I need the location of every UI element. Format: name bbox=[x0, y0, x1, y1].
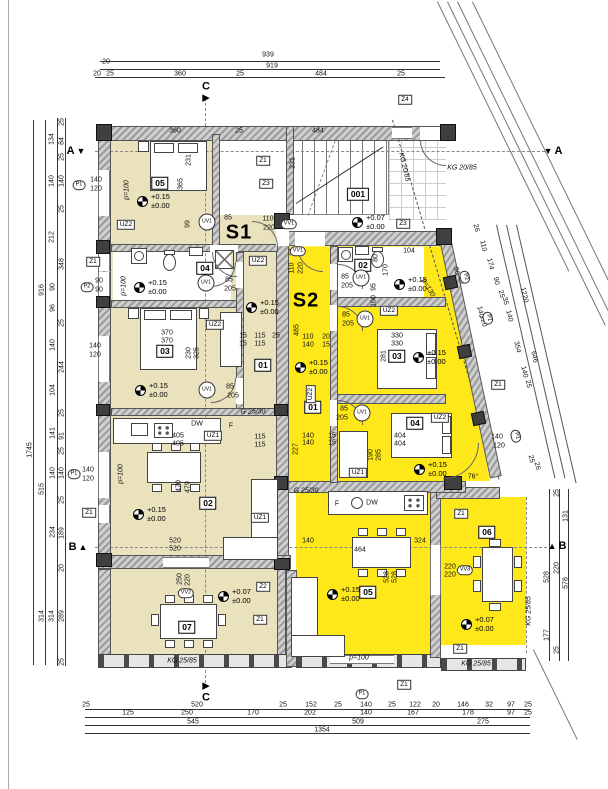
dim-label: 1354 bbox=[314, 727, 330, 734]
dim-label: p=100 bbox=[349, 655, 369, 662]
elevation-value: +0.07 bbox=[366, 213, 385, 222]
elevation-value: +0.15 bbox=[408, 275, 427, 284]
dim-label: 484 bbox=[312, 128, 324, 135]
dim-label: 15 bbox=[239, 333, 247, 340]
door-gap-s2-04 bbox=[330, 400, 337, 426]
dim-label: 528 bbox=[392, 571, 399, 583]
door-gap-s2-02 bbox=[330, 264, 337, 290]
dim-label: 178 bbox=[462, 710, 474, 717]
chair bbox=[203, 640, 213, 648]
opening-tag: Z3 bbox=[396, 219, 410, 229]
door-gap-s1-03 bbox=[236, 378, 243, 404]
dim-line-right bbox=[559, 489, 560, 661]
level-symbol-icon bbox=[413, 352, 424, 363]
pillow bbox=[144, 310, 166, 320]
nightstand bbox=[128, 308, 139, 319]
dim-label: 140 bbox=[50, 467, 57, 479]
dim-label: 110 bbox=[302, 334, 313, 341]
dim-label: 26 bbox=[472, 223, 481, 232]
window-z4 bbox=[392, 127, 412, 139]
dim-label: 25 bbox=[554, 489, 561, 497]
dim-label: 84 bbox=[59, 137, 66, 145]
dining-table bbox=[482, 547, 513, 602]
chair bbox=[152, 484, 162, 492]
dim-label: 25 bbox=[279, 702, 287, 709]
dim-label: 189 bbox=[59, 527, 66, 539]
dim-label: 115 bbox=[254, 341, 265, 348]
dim-label: 120 bbox=[82, 476, 94, 483]
elevation-marker: +0.15±0.00 bbox=[246, 298, 279, 316]
section-arrow-icon: ▶ bbox=[203, 681, 210, 692]
stove bbox=[154, 423, 173, 438]
elevation-value: +0.15 bbox=[309, 358, 328, 367]
chair bbox=[473, 580, 481, 592]
staircase bbox=[289, 128, 389, 215]
dim-label: 140 bbox=[302, 538, 314, 545]
section-marker-a: A▼ bbox=[67, 145, 86, 157]
section-letter: C bbox=[202, 81, 210, 93]
elevation-marker: +0.15±0.00 bbox=[394, 275, 427, 293]
elevation-marker: +0.15±0.00 bbox=[133, 505, 166, 523]
opening-tag: Z1 bbox=[397, 680, 411, 690]
dim-label: 177 bbox=[544, 629, 551, 641]
dim-label: 141 bbox=[50, 427, 57, 439]
opening-vv3 bbox=[430, 545, 441, 595]
dim-label: 96 bbox=[50, 304, 57, 312]
dim-label: 528 bbox=[384, 571, 391, 583]
dim-label: 370 bbox=[161, 330, 173, 337]
level-symbol-icon bbox=[295, 362, 306, 373]
dim-label: 220 bbox=[444, 564, 456, 571]
door-gap-s2-entry bbox=[295, 232, 325, 246]
door-tag: UV1 bbox=[199, 382, 216, 399]
dim-label: 25 bbox=[272, 333, 280, 340]
dim-label: 1220 bbox=[519, 287, 529, 304]
elevation-marker: +0.07±0.00 bbox=[352, 213, 385, 231]
chair bbox=[190, 484, 200, 492]
level-symbol-icon bbox=[414, 464, 425, 475]
room-number-box: 001 bbox=[347, 188, 369, 201]
room-number-box: 01 bbox=[254, 359, 271, 372]
dim-label: 115 bbox=[254, 333, 265, 340]
dim-label: 281 bbox=[381, 350, 388, 362]
dim-line-left bbox=[57, 118, 58, 666]
elevation-value: +0.15 bbox=[147, 505, 166, 514]
ramp-line bbox=[437, 2, 569, 272]
dim-label: 85 bbox=[341, 274, 349, 281]
level-symbol-icon bbox=[327, 589, 338, 600]
elevation-marker: +0.15±0.00 bbox=[135, 381, 168, 399]
elevation-value: ±0.00 bbox=[232, 596, 251, 605]
floor-plan: 9399192020253602548425360254841745916515… bbox=[0, 0, 608, 789]
dim-label: 20 bbox=[322, 334, 330, 341]
window-tag: VV1 bbox=[290, 246, 306, 256]
dim-label: 205 bbox=[341, 283, 353, 290]
section-marker-c: ▶C bbox=[202, 681, 210, 704]
sofa bbox=[291, 635, 345, 657]
dim-label: 205 bbox=[336, 415, 348, 422]
dim-label: 91 bbox=[59, 432, 66, 440]
builtin-tag: UZ1 bbox=[349, 468, 367, 478]
unit-label: S1 bbox=[226, 222, 252, 245]
room-number-box: 06 bbox=[478, 526, 495, 539]
dim-label: 25 bbox=[554, 646, 561, 654]
opening-tag: Z3 bbox=[259, 179, 273, 189]
dim-label: 25 bbox=[106, 71, 114, 78]
dim-label: 470 bbox=[176, 480, 183, 492]
opening-tag: Z1 bbox=[491, 380, 505, 390]
elevation-marker: +0.15±0.00 bbox=[413, 348, 446, 366]
section-letter: B bbox=[69, 541, 77, 553]
column bbox=[96, 240, 110, 254]
elevation-value: +0.07 bbox=[475, 615, 494, 624]
elevation-value: +0.07 bbox=[232, 587, 251, 596]
chair bbox=[514, 580, 522, 592]
dim-label: F bbox=[229, 423, 233, 430]
dim-label: 85 bbox=[226, 384, 234, 391]
chair bbox=[165, 640, 175, 648]
window-left-z1 bbox=[98, 253, 110, 271]
chair bbox=[396, 528, 406, 536]
dim-label: 110 bbox=[289, 262, 296, 273]
dim-label: 140 bbox=[90, 177, 102, 184]
dim-label: 95 bbox=[371, 283, 378, 291]
chair bbox=[489, 539, 501, 547]
dim-label: 646 bbox=[529, 351, 538, 364]
section-letter: C bbox=[202, 692, 210, 704]
elevation-value: +0.15 bbox=[427, 348, 446, 357]
pillow bbox=[170, 310, 192, 320]
builtin-tag: UZ2 bbox=[431, 413, 449, 423]
dim-label: 120 bbox=[89, 352, 101, 359]
door-tag: UV1 bbox=[199, 214, 216, 231]
dim-label: 90 bbox=[50, 283, 57, 291]
dim-label: 25 bbox=[82, 702, 90, 709]
section-arrow-icon: ▶ bbox=[203, 93, 210, 104]
dim-label: 120 bbox=[493, 443, 505, 450]
chair bbox=[358, 569, 368, 577]
dim-label: 140 bbox=[49, 175, 56, 187]
column bbox=[274, 404, 288, 416]
level-symbol-icon bbox=[246, 302, 257, 313]
room-number-box: 07 bbox=[178, 621, 195, 634]
builtin-tag: UZ2 bbox=[380, 306, 398, 316]
dim-label: KG 25/85 bbox=[167, 658, 197, 665]
section-marker-c: C▶ bbox=[202, 81, 210, 104]
dim-label: 140 bbox=[491, 434, 503, 441]
washing-machine-drum bbox=[341, 250, 351, 260]
dim-label: 250 bbox=[177, 573, 184, 585]
dim-label: 314 bbox=[39, 610, 46, 622]
room-number-box: 02 bbox=[199, 497, 216, 510]
elevation-marker: +0.15±0.00 bbox=[327, 585, 360, 603]
pillow bbox=[154, 143, 174, 153]
dim-label: 464 bbox=[354, 547, 366, 554]
elevation-value: ±0.00 bbox=[428, 469, 447, 478]
dim-label: 220 bbox=[298, 262, 305, 274]
elevation-marker: +0.07±0.00 bbox=[218, 587, 251, 605]
dim-label: 231 bbox=[290, 157, 297, 169]
room-number-box: 03 bbox=[388, 350, 405, 363]
opening-tag: Z2 bbox=[256, 582, 270, 592]
dim-label: 99 bbox=[185, 220, 192, 228]
dim-label: 220 bbox=[444, 572, 456, 579]
chair bbox=[377, 528, 387, 536]
dim-label: 314 bbox=[49, 610, 56, 622]
elevation-value: +0.15 bbox=[148, 278, 167, 287]
dim-label: 545 bbox=[187, 719, 199, 726]
window-tag: P1 bbox=[73, 180, 86, 190]
dim-label: 140 bbox=[50, 339, 57, 351]
dim-label: 170 bbox=[383, 264, 390, 276]
dim-label: 360 bbox=[174, 71, 186, 78]
dim-label: 146 bbox=[457, 702, 469, 709]
dim-label: 330 bbox=[391, 341, 403, 348]
elevation-marker: +0.15±0.00 bbox=[137, 192, 170, 210]
level-symbol-icon bbox=[137, 196, 148, 207]
dim-label: 25 bbox=[59, 409, 66, 417]
chair bbox=[184, 640, 194, 648]
dim-label: 250 bbox=[181, 710, 193, 717]
dim-label: F bbox=[335, 501, 339, 508]
elevation-value: ±0.00 bbox=[151, 201, 170, 210]
chair bbox=[489, 603, 501, 611]
dim-label: 85 bbox=[225, 277, 233, 284]
dim-label: 275 bbox=[477, 719, 489, 726]
kitchen-sink bbox=[351, 497, 363, 509]
stove bbox=[404, 495, 424, 511]
dim-label: G 25/30 bbox=[294, 488, 319, 495]
level-symbol-icon bbox=[133, 509, 144, 520]
section-marker-a: ▼A bbox=[544, 145, 563, 157]
opening-tag: Z1 bbox=[453, 644, 467, 654]
dim-label: 348 bbox=[59, 258, 66, 270]
dim-label: 85 bbox=[340, 406, 348, 413]
window-tag: P1 bbox=[482, 311, 494, 326]
opening-tag: Z1 bbox=[256, 156, 270, 166]
dim-label: 404 bbox=[394, 433, 406, 440]
dim-label: 234 bbox=[50, 526, 57, 538]
chair bbox=[514, 556, 522, 568]
section-arrow-icon: ▲ bbox=[548, 541, 557, 551]
dim-label: 15 bbox=[239, 341, 247, 348]
dim-label: 190 bbox=[368, 449, 375, 461]
dim-label: 220 bbox=[185, 574, 192, 586]
chair bbox=[473, 556, 481, 568]
dim-label: 35 bbox=[501, 296, 510, 305]
dim-label: 140 bbox=[302, 433, 314, 440]
dim-label: 140 bbox=[59, 467, 66, 479]
room-number-box: 04 bbox=[406, 417, 423, 430]
dim-line-bottom bbox=[85, 725, 530, 726]
chair bbox=[151, 614, 159, 626]
dim-label: 120 bbox=[90, 186, 102, 193]
chair bbox=[190, 443, 200, 451]
elevation-value: +0.15 bbox=[260, 298, 279, 307]
dim-label: 404 bbox=[394, 441, 406, 448]
dim-label: 520 bbox=[169, 538, 181, 545]
dim-label: 25 bbox=[235, 128, 243, 135]
builtin-tag: UZ2 bbox=[306, 385, 316, 403]
door-tag: UV1 bbox=[198, 275, 215, 292]
elevation-value: +0.15 bbox=[151, 192, 170, 201]
dim-label: 174 bbox=[485, 258, 494, 271]
dim-label: 285 bbox=[376, 449, 383, 461]
dim-label: 25 bbox=[524, 379, 533, 388]
dim-label: 140 bbox=[82, 467, 94, 474]
dim-label: 244 bbox=[59, 361, 66, 373]
window-tag: VV2 bbox=[178, 588, 194, 598]
elevation-marker: +0.07±0.00 bbox=[461, 615, 494, 633]
window-tag: P1 bbox=[356, 689, 369, 699]
washbasin bbox=[355, 246, 369, 255]
dim-label: 97 bbox=[507, 702, 515, 709]
chair bbox=[152, 443, 162, 451]
dim-label: 330 bbox=[391, 333, 403, 340]
dim-label: 25 bbox=[59, 118, 66, 126]
wall-stairs-left bbox=[286, 126, 294, 215]
dim-label: 152 bbox=[305, 702, 317, 709]
sofa bbox=[223, 537, 278, 560]
dim-label: DW bbox=[366, 500, 378, 507]
dim-label: 520 bbox=[169, 546, 181, 553]
section-arrow-icon: ▼ bbox=[544, 146, 553, 156]
dim-label: 15 bbox=[322, 342, 330, 349]
elevation-value: ±0.00 bbox=[260, 307, 279, 316]
section-letter: A bbox=[67, 145, 75, 157]
window-left-z1b bbox=[98, 505, 110, 523]
dim-line-bottom bbox=[85, 717, 530, 718]
dim-label: 365 bbox=[178, 178, 185, 190]
level-symbol-icon bbox=[394, 279, 405, 290]
dim-label: 115 bbox=[254, 442, 265, 449]
section-marker-b: B▲ bbox=[69, 541, 88, 553]
dim-label: 916 bbox=[39, 284, 46, 296]
elevation-marker: +0.15±0.00 bbox=[414, 460, 447, 478]
dim-label: 405 bbox=[172, 433, 184, 440]
dim-label: 220 bbox=[554, 562, 561, 574]
builtin-tag: UZ1 bbox=[204, 431, 222, 441]
section-line-b bbox=[95, 547, 547, 548]
builtin-tag: UZ1 bbox=[251, 513, 269, 523]
dim-label: KG 20/85 bbox=[447, 165, 477, 172]
section-letter: B bbox=[558, 540, 566, 552]
dim-label: 360 bbox=[169, 128, 181, 135]
dim-label: 509 bbox=[352, 719, 364, 726]
dim-label: 227 bbox=[293, 443, 300, 455]
elevation-value: ±0.00 bbox=[149, 390, 168, 399]
level-symbol-icon bbox=[352, 217, 363, 228]
dim-label: DW bbox=[191, 421, 203, 428]
room-number-box: 04 bbox=[196, 262, 213, 275]
dim-label: 25 bbox=[59, 319, 66, 327]
dim-label: 231 bbox=[186, 154, 193, 166]
wall-terrace07-left bbox=[98, 569, 111, 657]
dim-label: 289 bbox=[59, 610, 66, 622]
column bbox=[96, 124, 112, 141]
unit-label: S2 bbox=[293, 290, 319, 313]
dim-label: 97 bbox=[507, 710, 515, 717]
column-diag bbox=[457, 344, 472, 359]
level-symbol-icon bbox=[218, 591, 229, 602]
dim-label: 325 bbox=[194, 347, 201, 359]
window-tag: P1 bbox=[510, 429, 522, 444]
elevation-value: ±0.00 bbox=[366, 222, 385, 231]
elevation-value: +0.15 bbox=[149, 381, 168, 390]
page-frame-line bbox=[8, 0, 9, 789]
dim-label: 25 bbox=[524, 702, 532, 709]
window-tag: P2 bbox=[81, 282, 94, 292]
dim-line-left bbox=[65, 118, 66, 666]
dim-label: p=100 bbox=[118, 464, 125, 484]
door-tag: UV1 bbox=[353, 270, 370, 287]
dim-label: 170 bbox=[247, 710, 259, 717]
door-gap-s2-03 bbox=[330, 305, 337, 331]
room-number-box: 05 bbox=[151, 177, 168, 190]
dim-label: 20 bbox=[102, 59, 110, 66]
dim-label: 140 bbox=[302, 342, 314, 349]
dim-label: 25 bbox=[388, 702, 396, 709]
dim-label: KG 25/85 bbox=[461, 661, 491, 668]
dim-label: 140 bbox=[360, 702, 372, 709]
elevation-value: ±0.00 bbox=[475, 624, 494, 633]
dim-label: 202 bbox=[304, 710, 316, 717]
elevation-value: ±0.00 bbox=[408, 284, 427, 293]
dim-label: 919 bbox=[266, 63, 278, 70]
opening-tag: Z1 bbox=[253, 615, 267, 625]
dim-label: 80 bbox=[373, 254, 380, 262]
dim-label: 125 bbox=[122, 710, 134, 717]
column bbox=[440, 124, 456, 141]
dim-label: 20 bbox=[59, 564, 66, 572]
dim-label: 104 bbox=[403, 248, 415, 255]
window-tag: VV1 bbox=[281, 219, 297, 229]
dim-label: 25 bbox=[236, 71, 244, 78]
window-tag: P1 bbox=[68, 469, 81, 479]
dim-label: 110 bbox=[262, 216, 273, 223]
column-diag bbox=[471, 411, 486, 426]
dim-label: 85 bbox=[224, 215, 232, 222]
level-symbol-icon bbox=[461, 619, 472, 630]
elevation-value: ±0.00 bbox=[147, 514, 166, 523]
dim-label: 230 bbox=[186, 347, 193, 359]
dim-label: 25 bbox=[334, 702, 342, 709]
dim-label: 939 bbox=[262, 52, 274, 59]
dim-line-left bbox=[33, 120, 34, 665]
window-left-p1b bbox=[98, 452, 110, 498]
opening-tag: Z4 bbox=[398, 95, 412, 105]
dim-label: p=100 bbox=[124, 180, 131, 200]
dim-label: 85 bbox=[342, 312, 350, 319]
toilet bbox=[163, 254, 176, 271]
column bbox=[96, 404, 110, 416]
dim-label: 131 bbox=[563, 510, 570, 522]
dim-label: 90 bbox=[95, 287, 103, 294]
builtin-tag: UZ2 bbox=[206, 320, 224, 330]
dim-line-top bbox=[95, 77, 445, 78]
column bbox=[436, 228, 452, 245]
elevation-value: ±0.00 bbox=[427, 357, 446, 366]
dining-table bbox=[147, 452, 201, 483]
dim-label: 479 bbox=[185, 481, 192, 493]
elevation-marker: +0.15±0.00 bbox=[295, 358, 328, 376]
dim-label: 20 bbox=[432, 702, 440, 709]
dim-label: 212 bbox=[49, 231, 56, 243]
chair bbox=[165, 595, 175, 603]
dim-label: 578 bbox=[563, 577, 570, 589]
dim-label: 370 bbox=[161, 338, 173, 345]
elevation-value: ±0.00 bbox=[309, 367, 328, 376]
